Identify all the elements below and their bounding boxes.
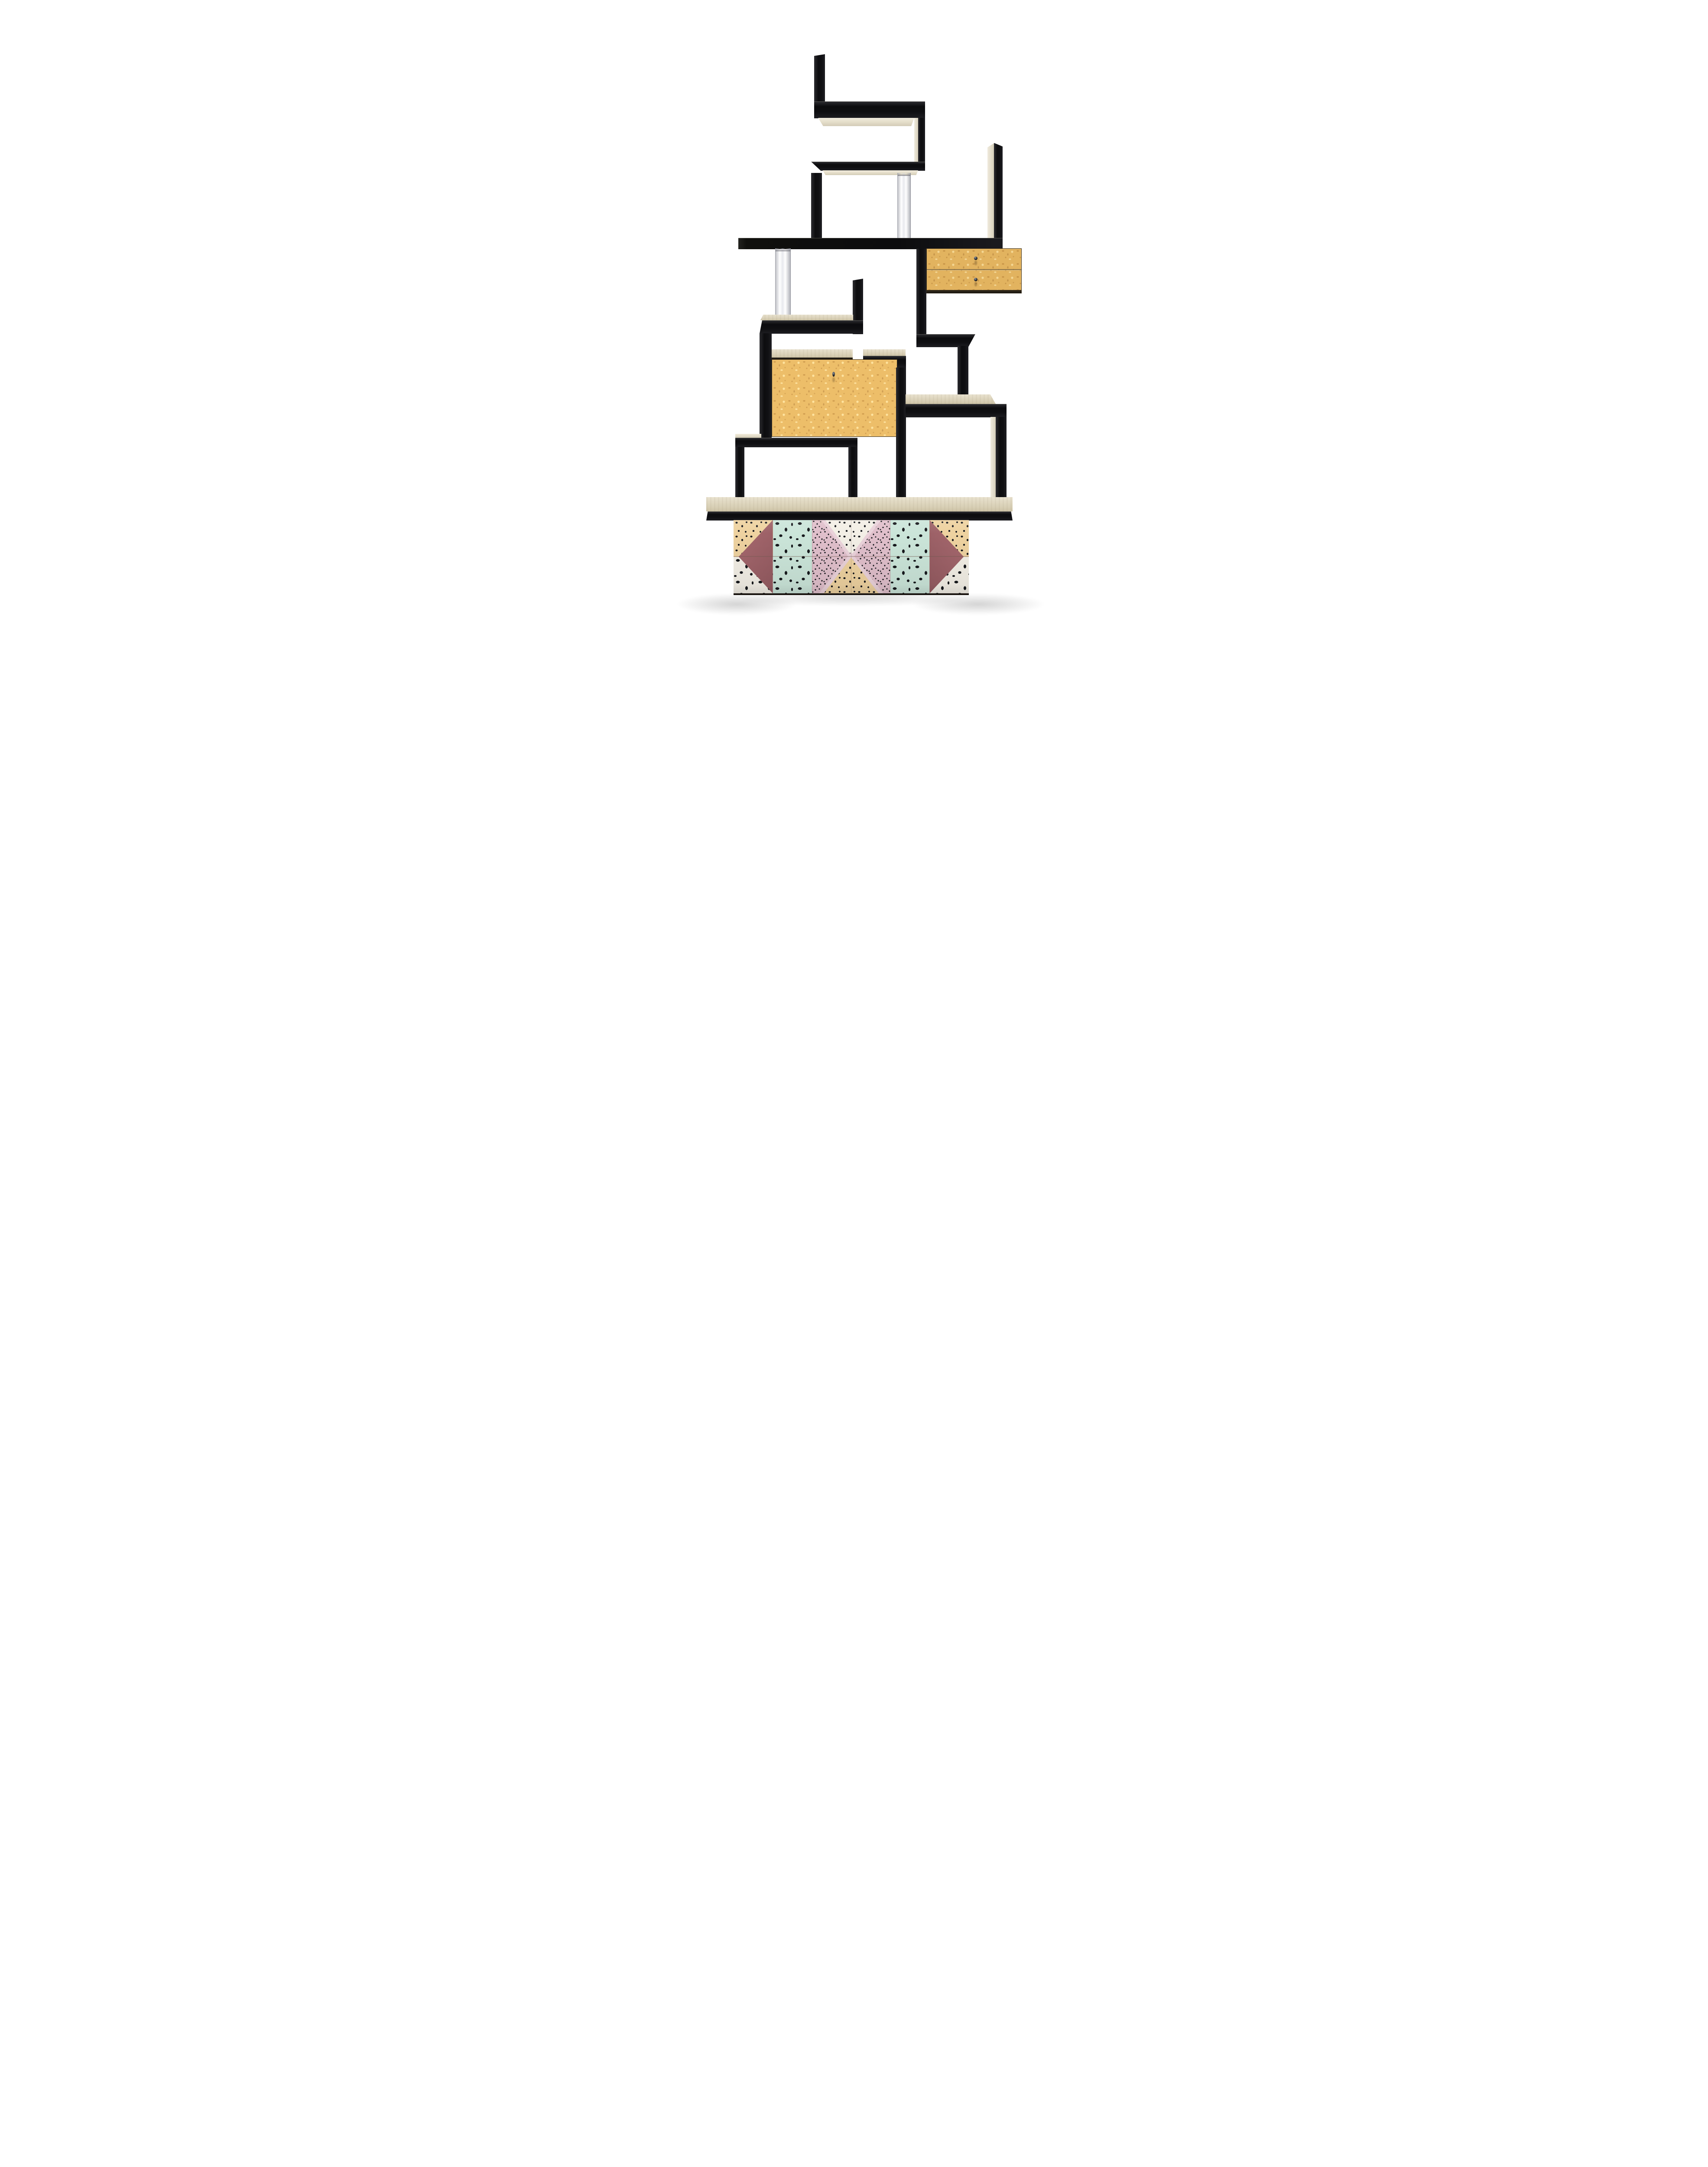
cabinet-drop-front (772, 359, 897, 437)
lower-right-box-top-bar (906, 404, 1007, 417)
top-zigzag-shelf (814, 101, 925, 118)
drawer-knob-bottom (974, 278, 977, 281)
long-shelf (738, 238, 1003, 249)
under-drawer-post (958, 346, 968, 395)
right-tall-post (987, 143, 1003, 238)
mid-shelf-left-post (760, 333, 772, 438)
photograph-memphis-bookcase (640, 0, 1068, 640)
drawer-divider (927, 269, 1021, 270)
lower-right-box-top-face (906, 394, 996, 404)
mid-shelf-top-face (760, 315, 853, 320)
top-zigzag-right-post (918, 118, 925, 162)
under-drawer-frame-bottom-bar (916, 334, 975, 347)
second-zigzag-shelf (811, 162, 925, 171)
lower-left-box-right-post (848, 447, 857, 504)
plinth-shading (734, 520, 969, 593)
drawer-knob-top (974, 257, 977, 260)
drawer-unit (926, 248, 1022, 293)
top-zigzag-right-post-side-face (914, 118, 918, 162)
divider-post (896, 368, 906, 504)
lower-left-box-top-bar (735, 438, 857, 447)
lower-right-box-right-post-inner-face (990, 417, 996, 504)
acrylic-column-right (897, 173, 911, 238)
terrazzo-plinth (734, 520, 969, 595)
base-shelf-top-face (706, 497, 1013, 511)
step-shelf-top-face (863, 349, 906, 356)
cabinet-top-face (772, 349, 853, 359)
lower-left-box-left-post (735, 447, 744, 504)
drawer-unit-left-bar (916, 249, 926, 347)
top-zigzag-left-post (814, 54, 825, 102)
drawer-unit-bottom-edge (927, 290, 1021, 293)
mid-shelf (760, 320, 863, 334)
lower-right-box-right-post (996, 417, 1007, 504)
second-zigzag-left-post (811, 173, 822, 238)
base-shelf-front-edge (706, 511, 1013, 521)
acrylic-column-left (775, 248, 791, 315)
top-zigzag-shelf-underside (814, 118, 914, 126)
right-tall-post-front (994, 143, 1003, 238)
lower-left-box-top-face (735, 434, 761, 438)
right-tall-post-side-face (987, 143, 994, 238)
